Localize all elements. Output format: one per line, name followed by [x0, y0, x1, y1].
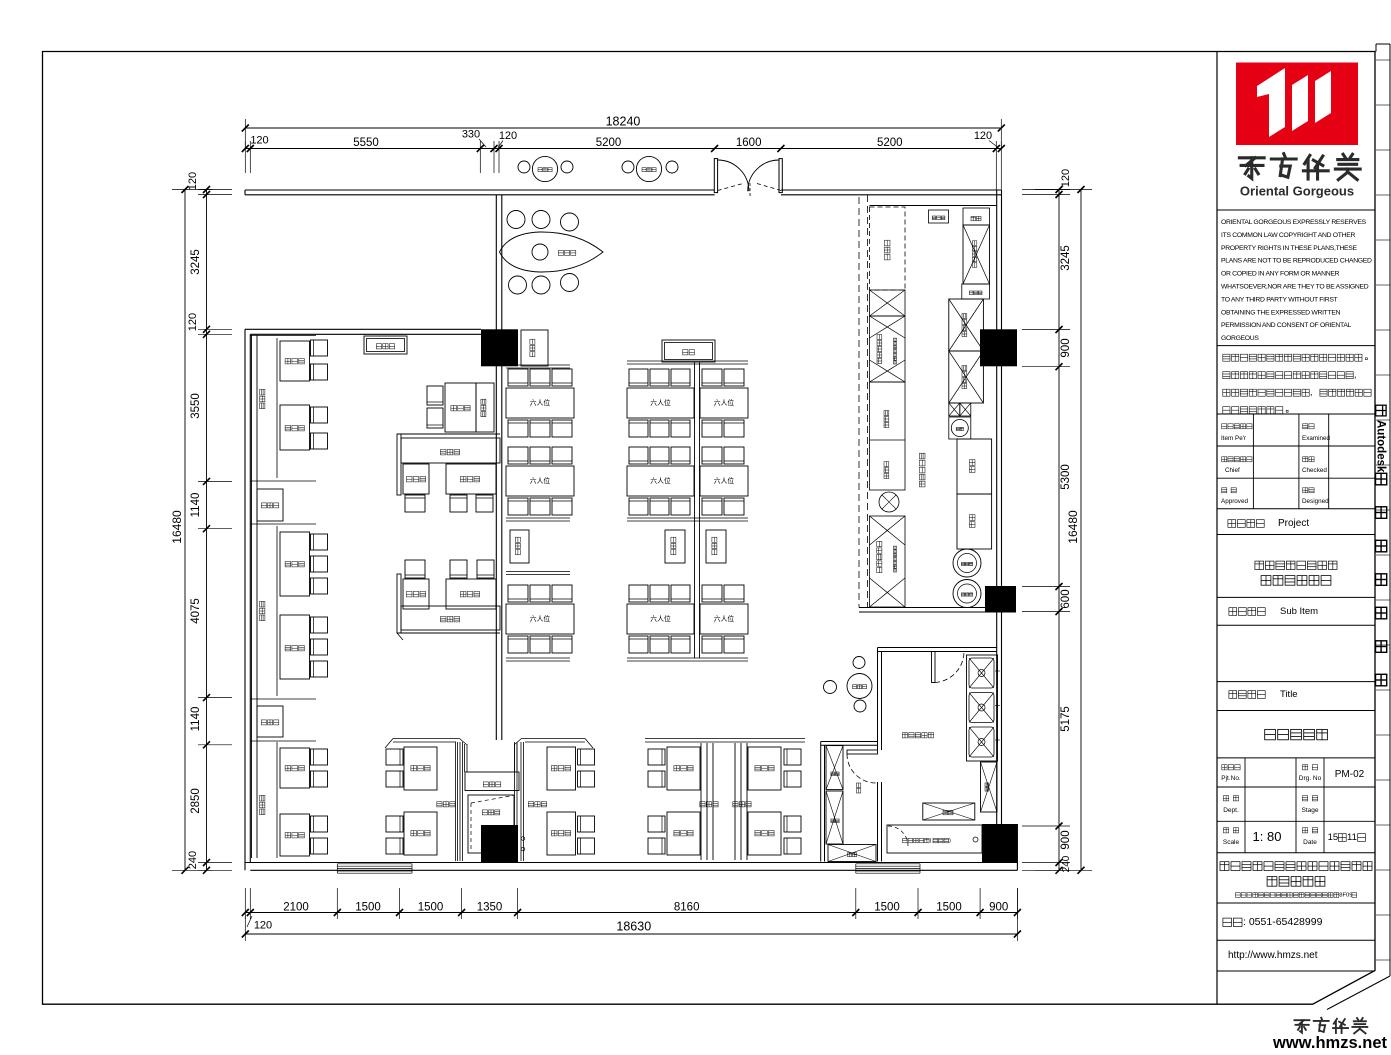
svg-text:六人位: 六人位	[650, 614, 671, 623]
svg-text:PERMISSION AND CONSENT OF ORIE: PERMISSION AND CONSENT OF ORIENTAL	[1221, 322, 1352, 329]
svg-text:OR COPIED IN ANY FORM OR MANNE: OR COPIED IN ANY FORM OR MANNER	[1221, 271, 1340, 278]
svg-text:GORGEOUS: GORGEOUS	[1221, 335, 1259, 342]
svg-text:1500: 1500	[418, 902, 444, 914]
svg-text:www.hmzs.net: www.hmzs.net	[1272, 1034, 1387, 1052]
svg-text:Title: Title	[1280, 689, 1298, 700]
svg-text:120: 120	[974, 130, 992, 142]
svg-text:15: 15	[1328, 832, 1339, 843]
svg-text:2850: 2850	[190, 788, 202, 814]
svg-text:120: 120	[250, 135, 268, 147]
svg-text:六人位: 六人位	[714, 398, 735, 407]
svg-text:ORIENTAL GORGEOUS EXPRESSLY RE: ORIENTAL GORGEOUS EXPRESSLY RESERVES	[1221, 219, 1367, 226]
svg-text:ITS COMMON LAW COPYRIGHT AND O: ITS COMMON LAW COPYRIGHT AND OTHER	[1221, 232, 1355, 239]
svg-text:900: 900	[989, 902, 1008, 914]
svg-text:Item Pe'r: Item Pe'r	[1221, 435, 1246, 442]
svg-text:: 0551-65428999: : 0551-65428999	[1243, 916, 1323, 928]
svg-text:5175: 5175	[1060, 706, 1072, 732]
svg-text:Approved: Approved	[1221, 498, 1248, 505]
svg-text:http://www.hmzs.net: http://www.hmzs.net	[1228, 950, 1318, 961]
svg-text:1500: 1500	[355, 902, 381, 914]
svg-text:1500: 1500	[936, 902, 962, 914]
svg-text:PLANS ARE NOT TO BE REPRODUCED: PLANS ARE NOT TO BE REPRODUCED CHANGED	[1221, 258, 1372, 265]
svg-text:1500: 1500	[874, 902, 900, 914]
svg-text:240: 240	[1061, 855, 1072, 872]
svg-text:PM-02: PM-02	[1335, 769, 1365, 780]
svg-text:11: 11	[1347, 832, 1357, 843]
svg-text:5300: 5300	[1060, 464, 1072, 490]
svg-text:330: 330	[462, 129, 480, 141]
svg-text:5550: 5550	[353, 137, 379, 149]
svg-text:1600: 1600	[736, 137, 762, 149]
svg-text:600: 600	[1060, 589, 1072, 608]
svg-text:900: 900	[1060, 338, 1072, 357]
svg-text:六人位: 六人位	[530, 614, 551, 623]
svg-text:1140: 1140	[190, 707, 202, 732]
svg-text:1140: 1140	[190, 493, 202, 518]
svg-text:1350: 1350	[477, 902, 503, 914]
svg-text:Autodesk: Autodesk	[1375, 420, 1387, 473]
svg-text:): )	[949, 838, 951, 844]
svg-text:Designed: Designed	[1302, 498, 1329, 505]
svg-text:Stage: Stage	[1302, 807, 1319, 814]
svg-text:六人位: 六人位	[530, 476, 551, 485]
svg-text:Project: Project	[1278, 518, 1309, 529]
svg-text:Date: Date	[1303, 839, 1317, 846]
svg-text:16480: 16480	[1066, 510, 1080, 544]
svg-text:Checked: Checked	[1302, 467, 1327, 474]
svg-text:OBTAINING THE EXPRESSED WRITTE: OBTAINING THE EXPRESSED WRITTEN	[1221, 309, 1341, 316]
svg-text:8F09: 8F09	[1339, 893, 1352, 899]
svg-text:六人位: 六人位	[714, 614, 735, 623]
svg-text:1: 80: 1: 80	[1253, 829, 1282, 844]
svg-text:(: (	[930, 838, 932, 844]
svg-text:Sub Item: Sub Item	[1280, 606, 1318, 617]
svg-text:240: 240	[187, 851, 199, 869]
svg-text:120: 120	[1060, 169, 1072, 187]
svg-text:3245: 3245	[190, 249, 202, 275]
svg-text:Dept.: Dept.	[1223, 807, 1239, 814]
svg-text:Drg. No: Drg. No	[1299, 775, 1322, 782]
svg-text:900: 900	[1060, 830, 1072, 849]
svg-text:18240: 18240	[606, 115, 641, 129]
svg-text:8160: 8160	[674, 902, 700, 914]
svg-text:,: ,	[1354, 370, 1356, 380]
svg-text:WHATSOEVER,NOR ARE THEY TO BE: WHATSOEVER,NOR ARE THEY TO BE ASSIGNED	[1221, 284, 1369, 291]
svg-text:Examined: Examined	[1302, 435, 1330, 442]
svg-text:,: ,	[1310, 387, 1312, 397]
svg-text:六人位: 六人位	[650, 476, 671, 485]
svg-text:18630: 18630	[616, 920, 651, 934]
svg-text:3245: 3245	[1060, 245, 1072, 271]
svg-text:120: 120	[499, 130, 517, 142]
svg-text:120: 120	[187, 172, 199, 190]
svg-text:TO ANY THIRD PARTY WITHOUT FIR: TO ANY THIRD PARTY WITHOUT FIRST	[1221, 296, 1338, 303]
svg-text:Scale: Scale	[1223, 839, 1240, 846]
svg-text:5200: 5200	[877, 137, 903, 149]
svg-text:120: 120	[187, 313, 199, 331]
svg-text:六人位: 六人位	[530, 398, 551, 407]
svg-text:16480: 16480	[170, 510, 184, 544]
svg-text:Chief: Chief	[1225, 467, 1240, 474]
svg-text:3550: 3550	[190, 393, 202, 419]
svg-text:4075: 4075	[190, 598, 202, 624]
svg-text:六人位: 六人位	[650, 398, 671, 407]
svg-text:六人位: 六人位	[714, 476, 735, 485]
svg-text:Oriental Gorgeous: Oriental Gorgeous	[1240, 184, 1354, 199]
svg-text:120: 120	[254, 920, 272, 932]
svg-text:2100: 2100	[283, 902, 309, 914]
svg-text:Pjt.No.: Pjt.No.	[1221, 775, 1241, 782]
svg-text:PROPERTY RIGHTS IN THESE PLANS: PROPERTY RIGHTS IN THESE PLANS,THESE	[1221, 245, 1358, 252]
svg-text:5200: 5200	[596, 137, 622, 149]
